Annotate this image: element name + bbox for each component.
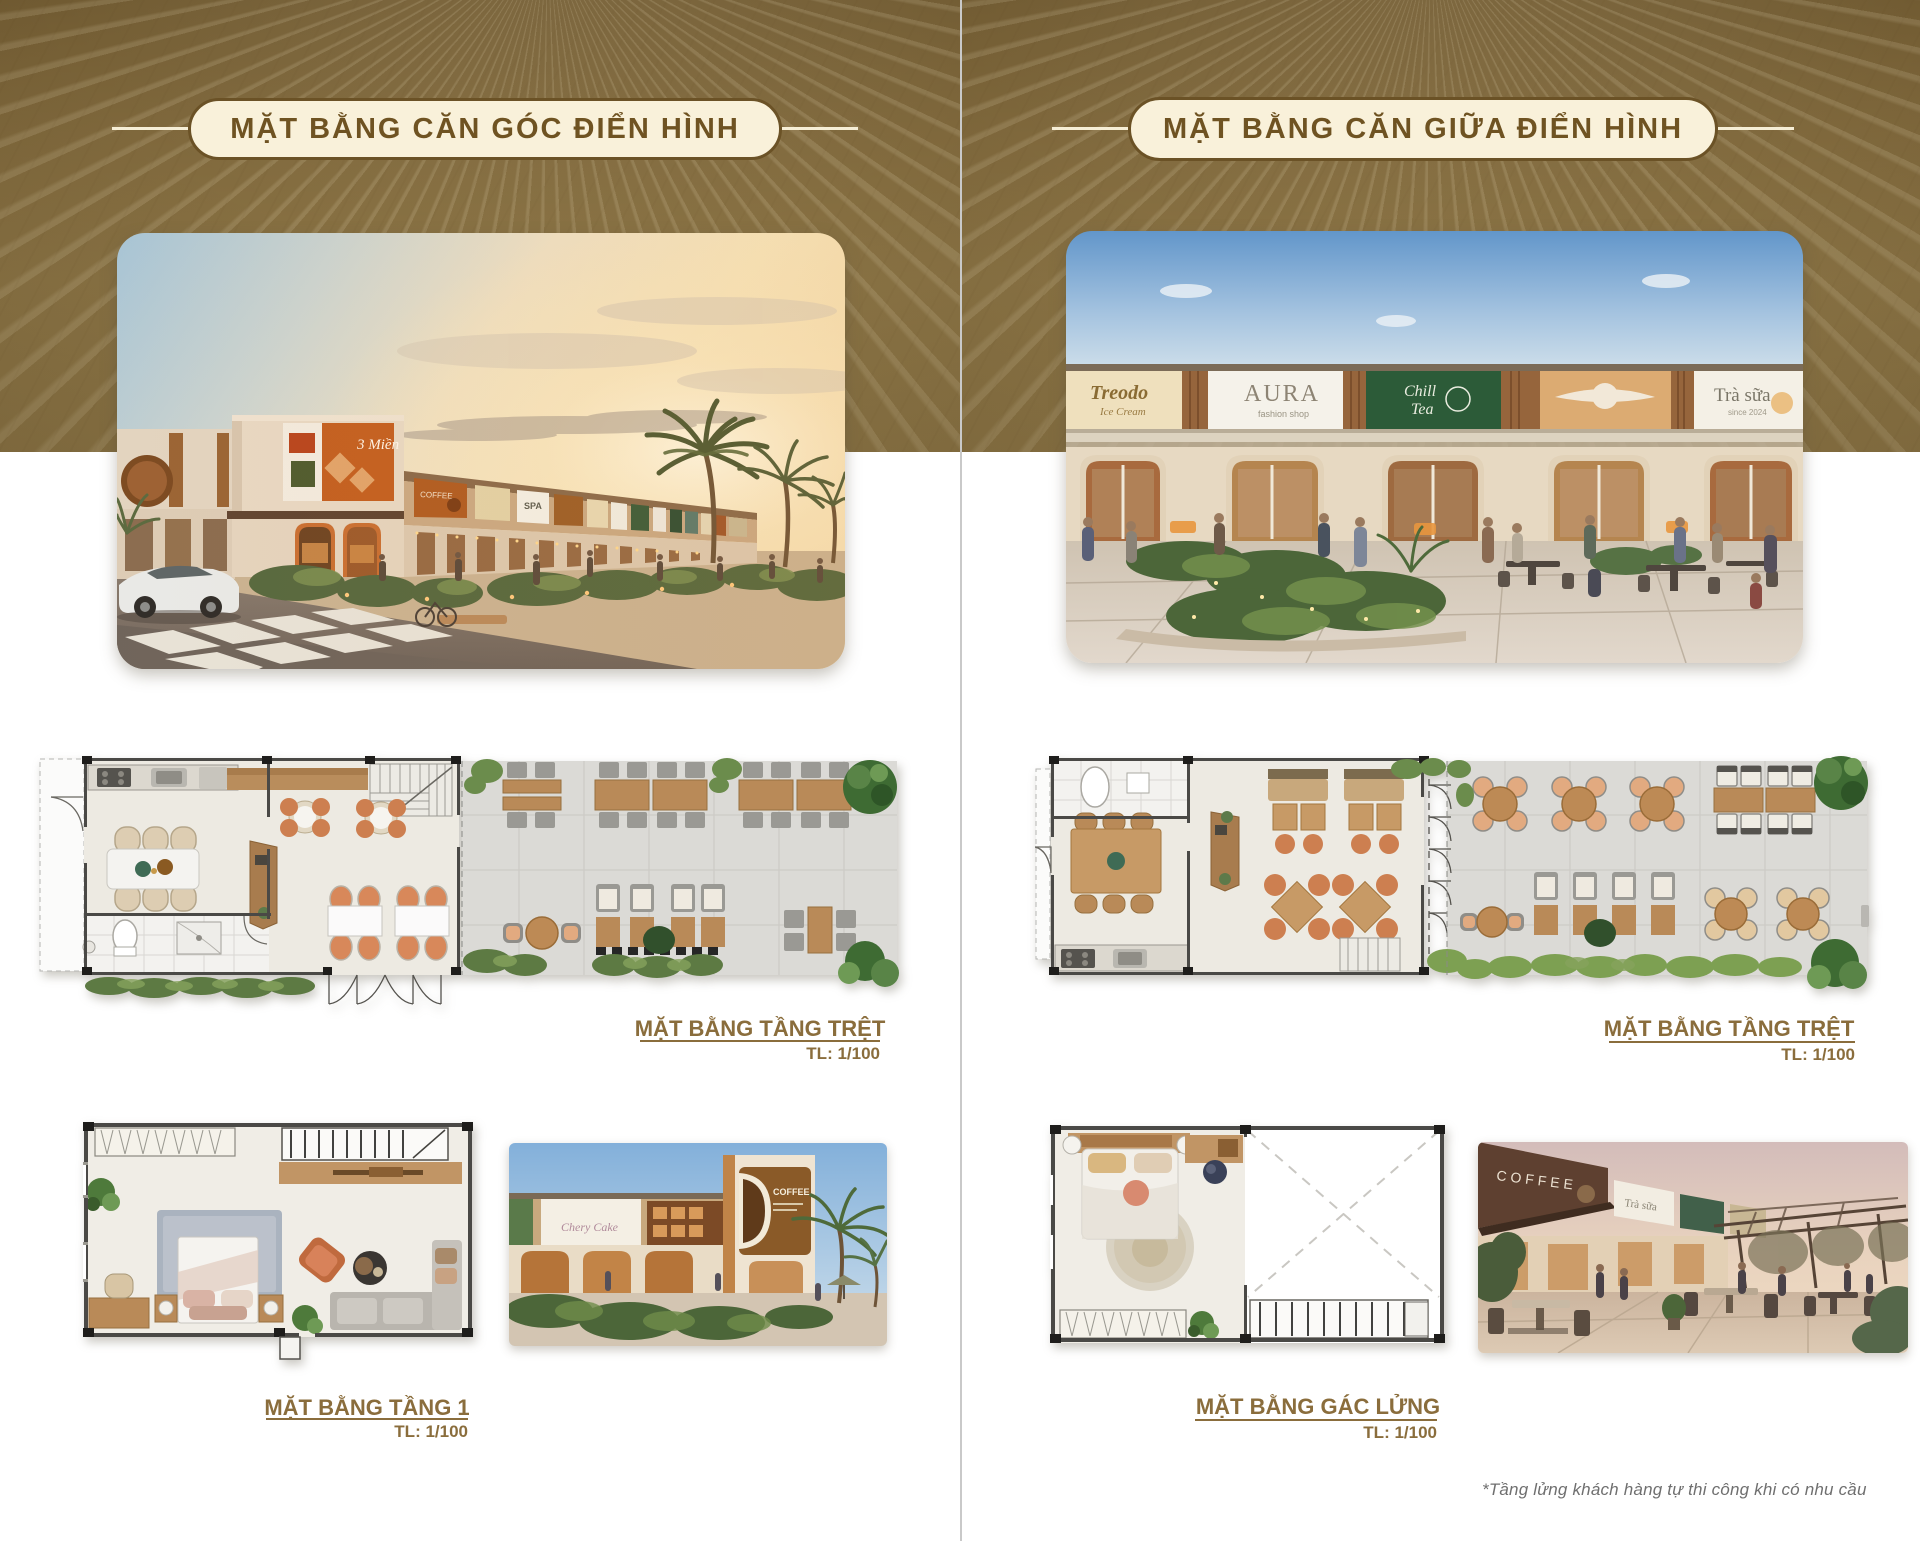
svg-text:AURA: AURA	[1244, 381, 1320, 407]
svg-text:fashion shop: fashion shop	[1258, 409, 1309, 419]
svg-text:Treodo: Treodo	[1090, 382, 1148, 404]
svg-text:COFFEE: COFFEE	[773, 1187, 810, 1197]
svg-text:Ice Cream: Ice Cream	[1099, 406, 1146, 418]
svg-text:Trà sữa: Trà sữa	[1714, 385, 1771, 406]
svg-text:Tea: Tea	[1411, 401, 1434, 418]
svg-text:Chery Cake: Chery Cake	[561, 1220, 619, 1234]
svg-text:since 2024: since 2024	[1728, 408, 1767, 417]
svg-text:Chill: Chill	[1404, 383, 1437, 400]
